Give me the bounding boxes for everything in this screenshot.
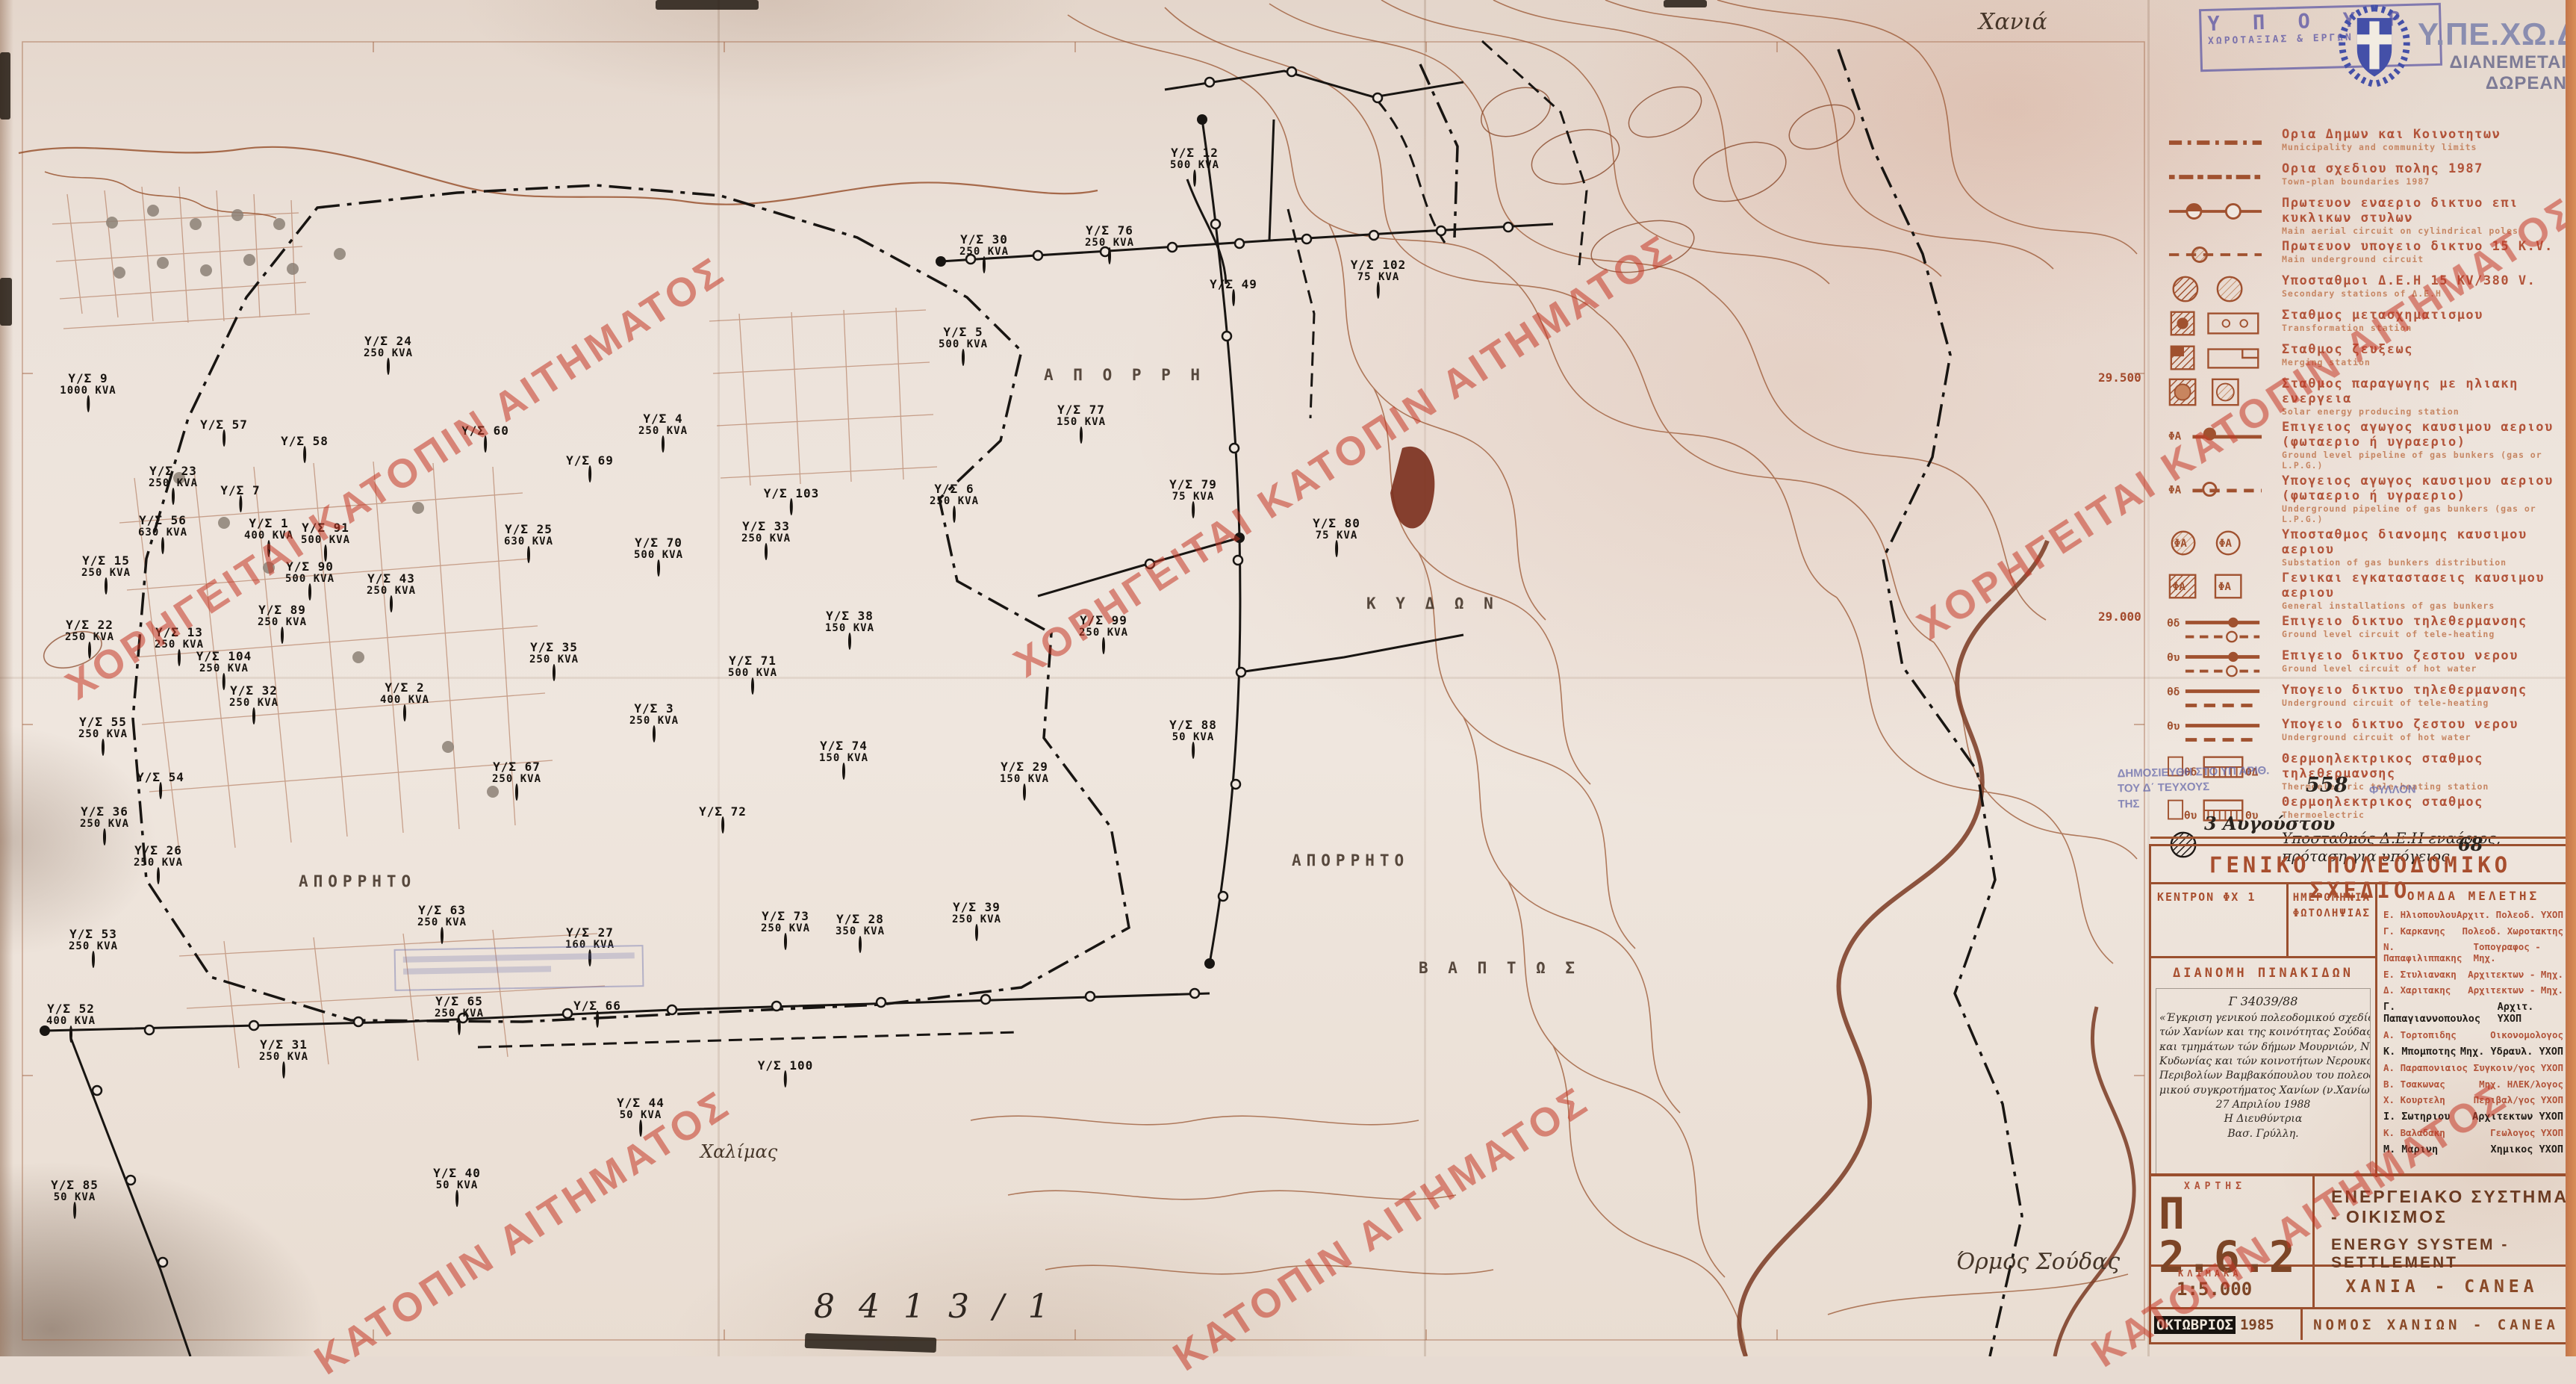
legend-label-english: Underground pipeline of gas bunkers (gas… bbox=[2282, 503, 2563, 524]
legend-symbol-icon bbox=[2159, 196, 2271, 227]
legend-symbol-icon bbox=[2159, 273, 2271, 305]
substation-label: Υ/Σ 30 250 KVA bbox=[959, 233, 1009, 271]
panel-divider-rule bbox=[2150, 837, 2569, 839]
place-label: Α Π Ο Ρ Ρ Η bbox=[1044, 366, 1205, 384]
substation-hatched-circle-icon bbox=[553, 664, 556, 681]
substation-hatched-circle-icon bbox=[1377, 282, 1380, 299]
substation-hatched-circle-icon bbox=[172, 488, 175, 505]
substation-label: Υ/Σ 54 bbox=[137, 771, 184, 798]
scan-artifact bbox=[1664, 0, 1707, 7]
legend-label-greek: Επιγειο δικτυο ζεστου νερου bbox=[2282, 648, 2519, 663]
sheet-distribution-title: ΔΙΑΝΟΜΗ ΠΙΝΑΚΙΔΩΝ bbox=[2151, 958, 2375, 981]
substation-hatched-circle-icon bbox=[765, 543, 768, 560]
approval-note-line: μικού συγκροτήματος Χανίων (ν.Χανίων)· bbox=[2159, 1084, 2367, 1098]
substation-label: Υ/Σ 43 250 KVA bbox=[367, 572, 416, 610]
substation-label: Υ/Σ 7 bbox=[220, 484, 260, 511]
legend-label-greek: Υποσταθμος διανομης καυσιμου αεριου bbox=[2282, 527, 2563, 557]
approval-note-line: τών Χανίων και της κοινότητας Σούδας bbox=[2159, 1025, 2367, 1040]
ministry-header: Υ.ΠΕ.ΧΩ.Δ.Ε. ΔΙΑΝΕΜΕΤΑΙ ΔΩΡΕΑΝ bbox=[2418, 16, 2567, 94]
substation-id: Υ/Σ 88 bbox=[1169, 718, 1217, 732]
substation-id: Υ/Σ 65 bbox=[435, 994, 483, 1008]
substation-hatched-circle-icon bbox=[784, 1070, 787, 1087]
substation-hatched-circle-icon bbox=[975, 924, 978, 941]
legend-row: Ορια σχεδιου πολης 1987 Town-plan bounda… bbox=[2159, 161, 2563, 193]
handwritten-date: 3 Αυγούστου bbox=[2204, 813, 2335, 834]
substation-label: Υ/Σ 53 250 KVA bbox=[69, 928, 118, 966]
team-row: Γ. Καρκανης Πολεοδ. Χωροτακτης bbox=[2383, 925, 2563, 937]
legend-label-greek: Επιγειο δικτυο τηλεθερμανσης bbox=[2282, 614, 2527, 629]
substation-id: Υ/Σ 22 bbox=[66, 618, 113, 632]
legend-symbol-icon bbox=[2159, 648, 2271, 680]
faint-ink-stamp bbox=[394, 945, 644, 991]
substation-hatched-circle-icon bbox=[859, 936, 862, 953]
team-row: Γ. Παπαγιαννοπουλος Αρχιτ. ΥΧΟΠ bbox=[2383, 1001, 2563, 1025]
substation-label: Υ/Σ 57 bbox=[200, 418, 248, 445]
substation-label: Υ/Σ 73 250 KVA bbox=[761, 910, 810, 948]
team-member-name: Χ. Κουρτελη bbox=[2383, 1094, 2445, 1105]
place-label: Όρμος Σούδας bbox=[1956, 1249, 2120, 1275]
legend-text: Επιγειος αγωγος καυσιμου αεριου (φωταερι… bbox=[2282, 420, 2563, 471]
approval-note-line: «Έγκριση γενικού πολεοδομικού σχεδίου bbox=[2159, 1011, 2367, 1025]
legend-symbol-icon bbox=[2159, 342, 2271, 373]
substation-label: Υ/Σ 85 50 KVA bbox=[51, 1179, 99, 1217]
legend-symbol-icon bbox=[2159, 683, 2271, 714]
substation-id: Υ/Σ 35 bbox=[530, 640, 578, 654]
team-row: Ε. Στυλιανακη Αρχιτεκτων - Μηχ. bbox=[2383, 969, 2563, 980]
substation-hatched-circle-icon bbox=[653, 725, 656, 742]
team-member-name: Γ. Καρκανης bbox=[2383, 925, 2445, 937]
substation-label: Υ/Σ 12 500 KVA bbox=[1170, 146, 1219, 184]
substation-label: Υ/Σ 36 250 KVA bbox=[80, 805, 129, 843]
team-member-role: Μηχ. Υδραυλ. ΥΧΟΠ bbox=[2460, 1046, 2563, 1058]
substation-label: Υ/Σ 39 250 KVA bbox=[952, 901, 1001, 939]
place-label: Χαλίμας bbox=[700, 1141, 777, 1162]
prefecture-cell: ΝΟΜΟΣ ΧΑΝΙΩΝ - CANEA bbox=[2303, 1309, 2569, 1340]
substation-hatched-circle-icon bbox=[1108, 247, 1111, 264]
substation-id: Υ/Σ 12 bbox=[1171, 146, 1219, 160]
substation-hatched-circle-icon bbox=[515, 783, 518, 801]
substation-id: Υ/Σ 67 bbox=[493, 760, 541, 774]
substation-id: Υ/Σ 56 bbox=[139, 513, 187, 527]
substation-id: Υ/Σ 43 bbox=[367, 571, 415, 586]
legend-label-greek: Υπογειος αγωγος καυσιμου αεριου (φωταερι… bbox=[2282, 474, 2563, 503]
substation-label: Υ/Σ 103 bbox=[764, 487, 819, 514]
legend-row: Επιγειο δικτυο ζεστου νερου Ground level… bbox=[2159, 648, 2563, 680]
place-label: 29.500 bbox=[2098, 370, 2141, 385]
photo-date-line1: ΗΜΕΡΟΜΗΝΙΑ bbox=[2293, 890, 2371, 906]
legend-symbol-icon bbox=[2159, 571, 2271, 602]
date-year: 1985 bbox=[2240, 1317, 2274, 1333]
substation-label: Υ/Σ 35 250 KVA bbox=[529, 641, 579, 679]
legend-row: Υπογειο δικτυο ζεστου νερου Underground … bbox=[2159, 717, 2563, 748]
team-member-role: Αρχιτ. ΥΧΟΠ bbox=[2498, 1001, 2563, 1025]
team-member-role: Αρχιτεκτων - Μηχ. bbox=[2468, 969, 2563, 980]
place-label: ΑΠΟΡΡΗΤΟ bbox=[299, 872, 416, 890]
photo-date-line2: ΦΩΤΟΛΗΨΙΑΣ bbox=[2293, 906, 2371, 922]
approval-note: Γ 34039/88 «Έγκριση γενικού πολεοδομικού… bbox=[2156, 988, 2371, 1176]
substation-label: Υ/Σ 4 250 KVA bbox=[638, 412, 688, 450]
substation-id: Υ/Σ 24 bbox=[364, 334, 412, 348]
team-member-role: Γεωλογος ΥΧΟΠ bbox=[2490, 1127, 2563, 1138]
substation-label: Υ/Σ 3 250 KVA bbox=[629, 702, 679, 740]
team-member-name: Β. Τσακωνας bbox=[2383, 1079, 2445, 1090]
legend-label-english: Substation of gas bunkers distribution bbox=[2282, 557, 2563, 568]
substation-label: Υ/Σ 66 bbox=[573, 999, 621, 1026]
substation-hatched-circle-icon bbox=[588, 465, 591, 482]
substation-id: Υ/Σ 71 bbox=[729, 654, 777, 668]
substation-hatched-circle-icon bbox=[73, 1202, 76, 1219]
legend-label-english: Ground level circuit of hot water bbox=[2282, 663, 2519, 674]
legend-symbol-icon bbox=[2159, 614, 2271, 645]
substation-id: Υ/Σ 102 bbox=[1351, 258, 1406, 272]
substation-label: Υ/Σ 67 250 KVA bbox=[492, 760, 541, 798]
kentron-cell: ΚΕΝΤΡΟΝ ΦΧ 1 bbox=[2151, 884, 2289, 956]
substation-label: Υ/Σ 29 150 KVA bbox=[1000, 760, 1049, 798]
substation-id: Υ/Σ 80 bbox=[1313, 516, 1360, 530]
substation-label: Υ/Σ 102 75 KVA bbox=[1351, 258, 1406, 297]
substation-id: Υ/Σ 5 bbox=[943, 325, 983, 339]
legend-text: Υπογειο δικτυο τηλεθερμανσης Underground… bbox=[2282, 683, 2527, 708]
approval-note-line: Κυδωνίας και τών κοινοτήτων Νερουκούρου, bbox=[2159, 1055, 2367, 1069]
approval-note-line: Βασ. Γρύλλη. bbox=[2159, 1127, 2367, 1141]
legend-symbol-icon bbox=[2159, 527, 2271, 559]
handwritten-number: 558 bbox=[2306, 774, 2348, 797]
substation-hatched-circle-icon bbox=[390, 595, 393, 612]
substation-hatched-circle-icon bbox=[1232, 289, 1235, 306]
substation-hatched-circle-icon bbox=[157, 867, 160, 884]
substation-id: Υ/Σ 32 bbox=[230, 683, 278, 698]
substation-id: Υ/Σ 31 bbox=[260, 1037, 308, 1052]
substation-hatched-circle-icon bbox=[102, 739, 105, 756]
legend-label-greek: Υπογειο δικτυο ζεστου νερου bbox=[2282, 717, 2519, 732]
substation-hatched-circle-icon bbox=[1192, 742, 1195, 759]
substation-hatched-circle-icon bbox=[790, 498, 793, 515]
legend-row: Γενικαι εγκαταστασεις καυσιμου αεριου Ge… bbox=[2159, 571, 2563, 611]
substation-label: Υ/Σ 52 400 KVA bbox=[46, 1002, 96, 1040]
team-row: Α. Παραπονιαιος Συγκοιν/γος ΥΧΟΠ bbox=[2383, 1062, 2563, 1073]
scan-artifact bbox=[0, 52, 10, 120]
substation-label: Υ/Σ 63 250 KVA bbox=[417, 904, 467, 942]
legend-text: Υπογειο δικτυο ζεστου νερου Underground … bbox=[2282, 717, 2519, 742]
substation-hatched-circle-icon bbox=[303, 446, 306, 463]
substation-label: Υ/Σ 9 1000 KVA bbox=[60, 372, 116, 410]
substation-id: Υ/Σ 44 bbox=[617, 1096, 665, 1110]
substation-label: Υ/Σ 74 150 KVA bbox=[819, 739, 868, 778]
place-label: ΑΠΟΡΡΗΤΟ bbox=[1292, 851, 1409, 869]
substation-hatched-circle-icon bbox=[596, 1011, 599, 1028]
substation-label: Υ/Σ 25 630 KVA bbox=[504, 523, 553, 561]
legend-text: Υπογειος αγωγος καυσιμου αεριου (φωταερι… bbox=[2282, 474, 2563, 524]
team-member-role: Οικονομολογος bbox=[2490, 1029, 2563, 1040]
substation-label: Υ/Σ 80 75 KVA bbox=[1313, 517, 1360, 555]
substation-hatched-circle-icon bbox=[105, 577, 108, 595]
substation-hatched-circle-icon bbox=[1335, 540, 1338, 557]
substation-label: Υ/Σ 55 250 KVA bbox=[78, 716, 128, 754]
substation-label: Υ/Σ 15 250 KVA bbox=[81, 554, 131, 592]
team-member-name: Γ. Παπαγιαννοπουλος bbox=[2383, 1001, 2498, 1025]
substation-hatched-circle-icon bbox=[1023, 783, 1026, 801]
substation-hatched-circle-icon bbox=[1192, 501, 1195, 518]
publication-stamp: ΔΗΜΟΣΙΕΥΘΗ ΣΤΟ ΥΠ ΑΡΙΘ. ΤΟΥ Δ΄ ΤΕΥΧΟΥΣ Τ… bbox=[2118, 763, 2439, 809]
title-block: ΓΕΝΙΚΟ ΠΟΛΕΟΔΟΜΙΚΟ ΣΧΕΔΙΟ ΚΕΝΤΡΟΝ ΦΧ 1 Η… bbox=[2149, 844, 2572, 1176]
team-member-role: Αρχιτ. Πολεοδ. ΥΧΟΠ bbox=[2457, 909, 2563, 920]
team-member-role: Τοπογραφος - Μηχ. bbox=[2474, 941, 2564, 963]
substation-hatched-circle-icon bbox=[87, 395, 90, 412]
substation-hatched-circle-icon bbox=[223, 429, 225, 447]
substation-label: Υ/Σ 71 500 KVA bbox=[728, 654, 777, 692]
scan-artifact bbox=[0, 278, 12, 326]
team-member-name: Ε. Στυλιανακη bbox=[2383, 969, 2457, 980]
legend-row: Υποσταθμος διανομης καυσιμου αεριου Subs… bbox=[2159, 527, 2563, 568]
substation-hatched-circle-icon bbox=[751, 677, 754, 695]
legend-row: Υπογειος αγωγος καυσιμου αεριου (φωταερι… bbox=[2159, 474, 2563, 524]
substation-id: Υ/Σ 85 bbox=[51, 1178, 99, 1192]
team-row: Κ. Μπομποτης Μηχ. Υδραυλ. ΥΧΟΠ bbox=[2383, 1046, 2563, 1058]
place-label: Κ Υ Δ Ω Ν bbox=[1366, 595, 1499, 612]
substation-label: Υ/Σ 77 150 KVA bbox=[1057, 403, 1106, 441]
substation-hatched-circle-icon bbox=[92, 951, 95, 968]
substation-id: Υ/Σ 38 bbox=[826, 609, 874, 623]
legend-label-greek: Ορια σχεδιου πολης 1987 bbox=[2282, 161, 2483, 176]
substation-label: Υ/Σ 79 75 KVA bbox=[1169, 478, 1217, 516]
legend-label-english: Ground level circuit of tele-heating bbox=[2282, 629, 2527, 639]
substation-hatched-circle-icon bbox=[455, 1190, 458, 1207]
substation-hatched-circle-icon bbox=[842, 763, 845, 780]
substation-id: Υ/Σ 23 bbox=[149, 464, 197, 478]
substation-label: Υ/Σ 6 250 KVA bbox=[930, 482, 979, 521]
place-label: Χανιά bbox=[1979, 9, 2047, 35]
substation-label: Υ/Σ 38 150 KVA bbox=[825, 609, 874, 648]
substation-id: Υ/Σ 40 bbox=[433, 1166, 481, 1180]
legend-symbol-icon bbox=[2159, 308, 2271, 339]
team-row: Δ. Χαριτακης Αρχιτεκτων - Μηχ. bbox=[2383, 984, 2563, 996]
greek-state-emblem-icon bbox=[2333, 1, 2416, 88]
team-member-name: Κ. Μπομποτης bbox=[2383, 1046, 2457, 1058]
legend-label-english: Underground circuit of hot water bbox=[2282, 732, 2519, 742]
substation-label: Υ/Σ 88 50 KVA bbox=[1169, 719, 1217, 757]
legend-label-english: General installations of gas bunkers bbox=[2282, 601, 2563, 611]
substation-hatched-circle-icon bbox=[848, 633, 851, 650]
substation-hatched-circle-icon bbox=[1080, 426, 1083, 444]
handwritten-mark: 68 bbox=[2458, 834, 2483, 855]
substation-hatched-circle-icon bbox=[103, 828, 106, 845]
substation-id: Υ/Σ 15 bbox=[82, 553, 130, 568]
legend-row: Επιγειο δικτυο τηλεθερμανσης Ground leve… bbox=[2159, 614, 2563, 645]
substation-hatched-circle-icon bbox=[159, 782, 162, 799]
substation-hatched-circle-icon bbox=[282, 1061, 285, 1079]
substation-id: Υ/Σ 53 bbox=[69, 927, 117, 941]
substation-hatched-circle-icon bbox=[527, 546, 530, 563]
substation-label: Υ/Σ 72 bbox=[699, 805, 747, 832]
substation-id: Υ/Σ 76 bbox=[1086, 223, 1133, 238]
legend-label-greek: Γενικαι εγκαταστασεις καυσιμου αεριου bbox=[2282, 571, 2563, 601]
place-label: Β Α Π Τ Ω Σ bbox=[1419, 959, 1580, 977]
substation-label: Υ/Σ 24 250 KVA bbox=[364, 335, 413, 373]
substation-hatched-circle-icon bbox=[721, 816, 724, 834]
approval-note-line: Γ 34039/88 bbox=[2159, 993, 2367, 1010]
substation-id: Υ/Σ 28 bbox=[836, 912, 884, 926]
substation-id: Υ/Σ 25 bbox=[505, 522, 553, 536]
substation-hatched-circle-icon bbox=[441, 927, 444, 944]
substation-id: Υ/Σ 36 bbox=[81, 804, 128, 819]
substation-hatched-circle-icon bbox=[223, 673, 225, 690]
substation-label: Υ/Σ 31 250 KVA bbox=[259, 1038, 308, 1076]
team-member-name: Ε. Ηλιοπουλου bbox=[2383, 909, 2457, 920]
study-team-header: ΟΜΑΔΑ ΜΕΛΕΤΗΣ bbox=[2383, 889, 2563, 903]
substation-id: Υ/Σ 77 bbox=[1057, 403, 1105, 417]
legend-label-english: Underground circuit of tele-heating bbox=[2282, 698, 2527, 708]
place-label: 29.000 bbox=[2098, 609, 2141, 624]
team-member-role: Πολεοδ. Χωροτακτης bbox=[2463, 925, 2563, 937]
team-member-name: Ν. Παπαφιλιππακης bbox=[2383, 941, 2474, 963]
legend-label-english: Municipality and community limits bbox=[2282, 142, 2501, 152]
team-row: Ε. Ηλιοπουλου Αρχιτ. Πολεοδ. ΥΧΟΠ bbox=[2383, 909, 2563, 920]
approval-note-line: και τμημάτων τών δήμων Μουρνιών, Νέας bbox=[2159, 1040, 2367, 1055]
substation-label: Υ/Σ 2 400 KVA bbox=[380, 681, 429, 719]
substation-hatched-circle-icon bbox=[962, 349, 965, 366]
substation-hatched-circle-icon bbox=[403, 704, 406, 722]
substation-id: Υ/Σ 30 bbox=[960, 232, 1008, 246]
substation-hatched-circle-icon bbox=[387, 358, 390, 375]
substation-id: Υ/Σ 39 bbox=[953, 900, 1001, 914]
legend-label-english: Solar energy producing station bbox=[2282, 406, 2563, 417]
substation-id: Υ/Σ 4 bbox=[643, 412, 682, 426]
substation-label: Υ/Σ 100 bbox=[758, 1059, 813, 1086]
legend-text: Ορια Δημων και Κοινοτητων Municipality a… bbox=[2282, 127, 2501, 152]
substation-label: Υ/Σ 69 bbox=[566, 454, 614, 481]
substation-label: Υ/Σ 23 250 KVA bbox=[149, 465, 198, 503]
backing-board-edge bbox=[2566, 0, 2576, 1356]
substation-label: Υ/Σ 32 250 KVA bbox=[229, 684, 279, 722]
substation-hatched-circle-icon bbox=[458, 1018, 461, 1035]
legend-text: Ορια σχεδιου πολης 1987 Town-plan bounda… bbox=[2282, 161, 2483, 187]
legend-symbol-icon bbox=[2159, 239, 2271, 270]
substation-label: Υ/Σ 56 630 KVA bbox=[138, 514, 187, 552]
substation-hatched-circle-icon bbox=[178, 649, 181, 666]
substation-label: Υ/Σ 104 250 KVA bbox=[196, 650, 252, 688]
legend-symbol-icon bbox=[2159, 161, 2271, 193]
approval-note-line: Η Διευθύντρια bbox=[2159, 1112, 2367, 1126]
legend-label-greek: Επιγειος αγωγος καυσιμου αεριου (φωταερι… bbox=[2282, 420, 2563, 450]
substation-id: Υ/Σ 9 bbox=[68, 371, 108, 385]
team-row: Α. Τορτοπιδης Οικονομολογος bbox=[2383, 1029, 2563, 1040]
plan-title: ΓΕΝΙΚΟ ΠΟΛΕΟΔΟΜΙΚΟ ΣΧΕΔΙΟ bbox=[2151, 846, 2569, 884]
substation-id: Υ/Σ 73 bbox=[762, 909, 809, 923]
substation-hatched-circle-icon bbox=[1193, 170, 1196, 187]
substation-id: Υ/Σ 55 bbox=[79, 715, 127, 729]
substation-label: Υ/Σ 65 250 KVA bbox=[435, 995, 484, 1033]
legend-row: Ορια Δημων και Κοινοτητων Municipality a… bbox=[2159, 127, 2563, 158]
legend-label-greek: Υπογειο δικτυο τηλεθερμανσης bbox=[2282, 683, 2527, 698]
substation-id: Υ/Σ 2 bbox=[385, 680, 424, 695]
substation-id: Υ/Σ 6 bbox=[934, 482, 974, 496]
substation-hatched-circle-icon bbox=[161, 537, 164, 554]
photo-date-cell: ΗΜΕΡΟΜΗΝΙΑ ΦΩΤΟΛΗΨΙΑΣ bbox=[2289, 884, 2375, 956]
distributed-free-label: ΔΙΑΝΕΜΕΤΑΙ ΔΩΡΕΑΝ bbox=[2418, 52, 2567, 94]
legend-row: Υπογειο δικτυο τηλεθερμανσης Underground… bbox=[2159, 683, 2563, 714]
substation-label: Υ/Σ 89 250 KVA bbox=[258, 603, 307, 642]
legend-symbol-icon bbox=[2159, 717, 2271, 748]
substation-id: Υ/Σ 89 bbox=[258, 603, 306, 617]
substation-label: Υ/Σ 28 350 KVA bbox=[836, 913, 885, 951]
legend-text: Επιγειο δικτυο ζεστου νερου Ground level… bbox=[2282, 648, 2519, 674]
substation-id: Υ/Σ 27 bbox=[566, 925, 614, 940]
substation-hatched-circle-icon bbox=[662, 435, 665, 453]
place-label: 8 4 1 3 / 1 bbox=[814, 1288, 1056, 1326]
team-member-name: Δ. Χαριτακης bbox=[2383, 984, 2451, 996]
team-member-name: Α. Τορτοπιδης bbox=[2383, 1029, 2457, 1040]
substation-hatched-circle-icon bbox=[239, 495, 242, 512]
legend-symbol-icon bbox=[2159, 127, 2271, 158]
legend-text: Υποσταθμος διανομης καυσιμου αεριου Subs… bbox=[2282, 527, 2563, 568]
substation-hatched-circle-icon bbox=[281, 627, 284, 644]
substation-hatched-circle-icon bbox=[784, 933, 787, 950]
substation-hatched-circle-icon bbox=[69, 1025, 72, 1043]
scan-artifact bbox=[656, 0, 759, 10]
substation-label: Υ/Σ 76 250 KVA bbox=[1085, 224, 1134, 262]
substation-label: Υ/Σ 26 250 KVA bbox=[134, 844, 183, 882]
legend-label-greek: Ορια Δημων και Κοινοτητων bbox=[2282, 127, 2501, 142]
substation-id: Υ/Σ 70 bbox=[635, 536, 682, 550]
substation-label: Υ/Σ 5 500 KVA bbox=[939, 326, 988, 364]
legend-text: Επιγειο δικτυο τηλεθερμανσης Ground leve… bbox=[2282, 614, 2527, 639]
substation-id: Υ/Σ 52 bbox=[47, 1002, 95, 1016]
legend-label-english: Town-plan boundaries 1987 bbox=[2282, 176, 2483, 187]
pub-stamp-right: ΦΥΛΛΟΝ bbox=[2369, 782, 2416, 798]
substation-hatched-circle-icon bbox=[953, 506, 956, 523]
substation-hatched-circle-icon bbox=[657, 559, 660, 577]
substation-hatched-circle-icon bbox=[983, 256, 986, 273]
legend-label-english: Ground level pipeline of gas bunkers (ga… bbox=[2282, 450, 2563, 471]
team-row: Ν. Παπαφιλιππακης Τοπογραφος - Μηχ. bbox=[2383, 941, 2563, 963]
substation-label: Υ/Σ 40 50 KVA bbox=[433, 1167, 481, 1205]
substation-id: Υ/Σ 29 bbox=[1001, 760, 1048, 774]
team-member-role: Συγκοιν/γος ΥΧΟΠ bbox=[2474, 1062, 2563, 1073]
substation-id: Υ/Σ 63 bbox=[418, 903, 466, 917]
substation-id: Υ/Σ 26 bbox=[134, 843, 182, 857]
substation-label: Υ/Σ 70 500 KVA bbox=[634, 536, 683, 574]
legend-text: Γενικαι εγκαταστασεις καυσιμου αεριου Ge… bbox=[2282, 571, 2563, 611]
substation-id: Υ/Σ 33 bbox=[742, 519, 790, 533]
substation-id: Υ/Σ 79 bbox=[1169, 477, 1217, 491]
substation-id: Υ/Σ 3 bbox=[634, 701, 673, 716]
substation-label: Υ/Σ 33 250 KVA bbox=[741, 520, 791, 558]
substation-label: Υ/Σ 49 bbox=[1210, 278, 1257, 305]
substation-label: Υ/Σ 58 bbox=[281, 435, 329, 462]
city-cell: ΧΑΝΙΑ - CANEA bbox=[2315, 1267, 2569, 1307]
ministry-name: Υ.ΠΕ.ΧΩ.Δ.Ε. bbox=[2418, 16, 2567, 52]
team-member-role: Χημικος ΥΧΟΠ bbox=[2490, 1143, 2563, 1155]
team-member-name: Α. Παραπονιαιος bbox=[2383, 1062, 2468, 1073]
substation-id: Υ/Σ 104 bbox=[196, 649, 252, 663]
substation-id: Υ/Σ 74 bbox=[820, 739, 868, 753]
substation-hatched-circle-icon bbox=[308, 583, 311, 601]
substation-hatched-circle-icon bbox=[252, 707, 255, 724]
team-member-role: Αρχιτεκτων - Μηχ. bbox=[2468, 984, 2563, 996]
approval-note-line: Περιβολίων Βαμβακόπουλου του πολεοδο- bbox=[2159, 1069, 2367, 1083]
approval-note-line: 27 Απριλίου 1988 bbox=[2159, 1098, 2367, 1112]
